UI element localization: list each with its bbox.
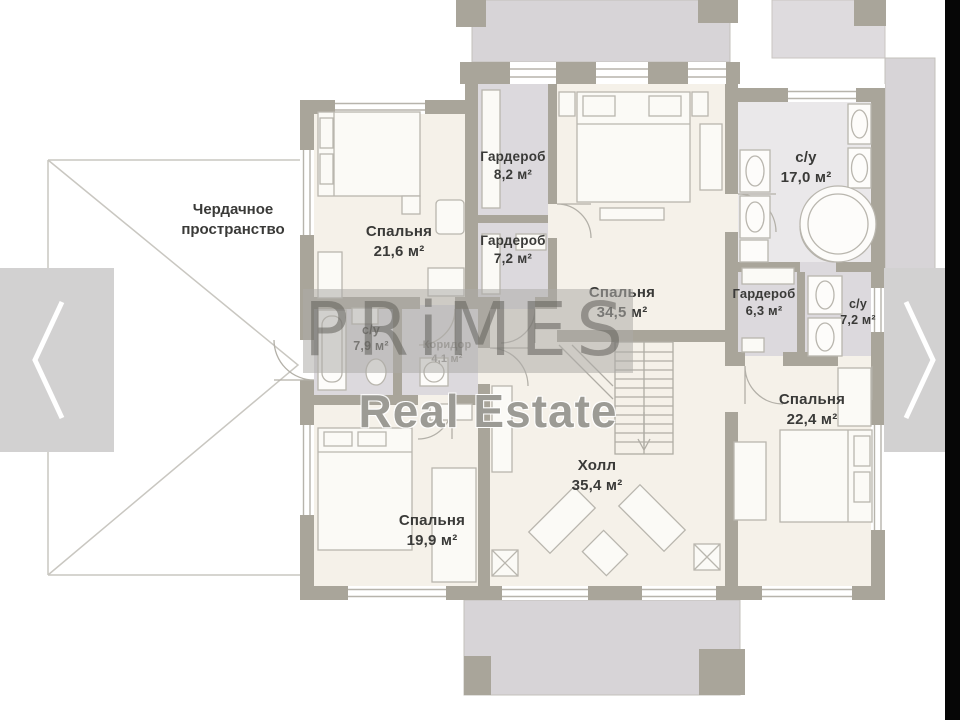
sink-icon — [352, 308, 378, 324]
room-label-attic: Чердачное пространство — [143, 200, 323, 241]
toilet-icon — [366, 359, 386, 385]
letterbox-bar — [945, 0, 960, 720]
bookcase-icon — [492, 386, 512, 472]
closet-icon — [700, 124, 722, 190]
plant-icon — [492, 550, 518, 576]
chevron-left-icon — [0, 268, 114, 452]
photo-viewer: Чердачное пространство Спальня21,6 м² Га… — [0, 0, 960, 720]
closet-icon — [742, 268, 794, 284]
next-photo-button[interactable] — [884, 268, 945, 452]
armchair-icon — [436, 200, 464, 234]
furniture-corridor — [420, 358, 448, 386]
plant-icon — [694, 544, 720, 570]
floor-plan — [0, 0, 960, 720]
chaise-icon — [734, 442, 766, 520]
pillar — [464, 656, 491, 695]
pillar — [699, 649, 745, 695]
terrace-top — [456, 0, 886, 62]
pillar — [456, 0, 486, 27]
pillar — [854, 0, 886, 26]
prev-photo-button[interactable] — [0, 268, 114, 452]
closet-icon — [482, 234, 500, 294]
pillar — [698, 0, 738, 23]
closet-icon — [482, 90, 500, 208]
terrace-bottom — [464, 600, 745, 695]
chevron-right-icon — [884, 268, 945, 452]
closet-icon — [838, 368, 871, 426]
closet-icon — [432, 468, 476, 582]
